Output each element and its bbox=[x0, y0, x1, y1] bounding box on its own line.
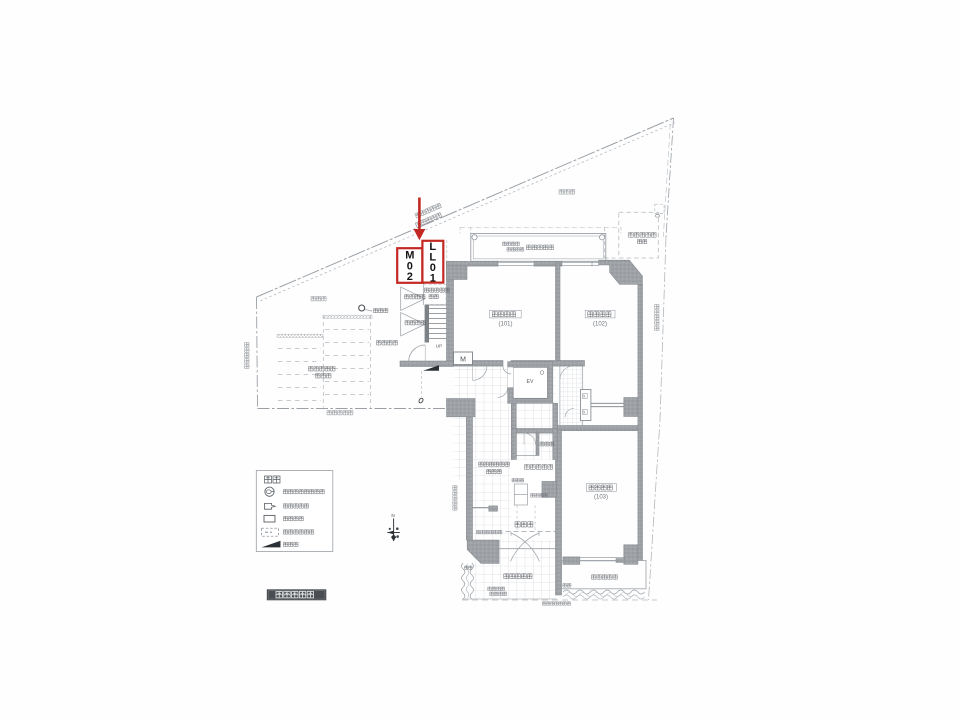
svg-text:UP: UP bbox=[436, 344, 443, 350]
svg-text:2: 2 bbox=[407, 271, 413, 283]
svg-text:45: 45 bbox=[582, 394, 586, 398]
svg-text:(102): (102) bbox=[593, 322, 607, 328]
svg-text:(103): (103) bbox=[594, 495, 608, 501]
svg-text:N: N bbox=[391, 513, 394, 518]
svg-text:M: M bbox=[460, 357, 466, 364]
svg-text:45: 45 bbox=[582, 410, 586, 414]
svg-text:1: 1 bbox=[430, 272, 436, 284]
svg-text:(101): (101) bbox=[498, 322, 512, 328]
svg-text:EV: EV bbox=[527, 379, 534, 385]
